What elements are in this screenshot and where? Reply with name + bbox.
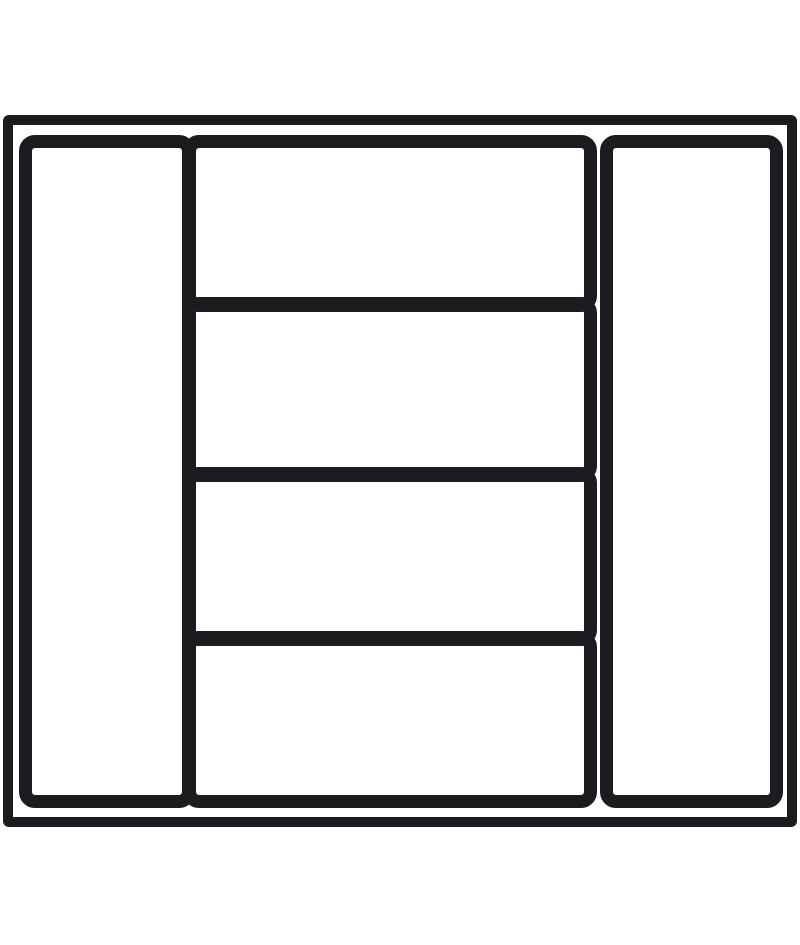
- compartment-left-tray: [19, 135, 195, 808]
- compartment-middle-tray-3: [183, 467, 597, 646]
- compartment-middle-tray-2: [183, 297, 597, 482]
- compartment-middle-tray-1: [183, 135, 597, 312]
- drawer-organizer-diagram: [0, 0, 800, 945]
- compartment-right-tray: [600, 135, 783, 808]
- compartment-middle-tray-4: [183, 631, 597, 808]
